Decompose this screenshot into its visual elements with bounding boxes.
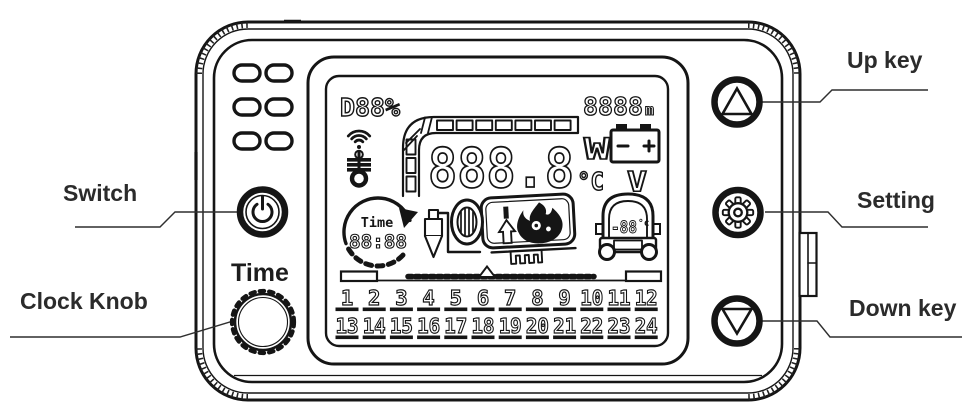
timer-hour-label: 16	[417, 314, 440, 338]
clock-knob[interactable]	[232, 291, 294, 353]
timer-hour-label: 8	[531, 286, 543, 310]
diagram-canvas: D88%	[0, 0, 970, 409]
timer-hour-label: 20	[526, 314, 549, 338]
cabin-temp-unit: °c	[638, 218, 649, 229]
car-icon: -88 °c	[596, 194, 660, 260]
timer-hour-underline	[444, 308, 467, 312]
timer-hour-label: 5	[450, 286, 462, 310]
timer-hour-underline	[472, 308, 495, 312]
battery-icon	[611, 124, 659, 162]
timer-hour-underline	[526, 308, 549, 312]
up-button[interactable]	[715, 80, 760, 125]
heater-bar	[503, 207, 509, 219]
timer-hour-label: 3	[395, 286, 407, 310]
fan-icon	[452, 200, 483, 244]
timer-hour-label: 2	[368, 286, 380, 310]
timer-hour-underline	[526, 336, 549, 340]
timer-hour-underline	[417, 336, 440, 340]
gear-icon	[723, 197, 753, 227]
timer-hour-label: 24	[635, 314, 658, 338]
timer-hour-label: 1	[341, 286, 353, 310]
timer-hour-label: 7	[504, 286, 516, 310]
timer-hour-label: 14	[363, 314, 386, 338]
power-button[interactable]	[240, 190, 285, 235]
timer-hour-label: 19	[499, 314, 522, 338]
timer-hour-underline	[444, 336, 467, 340]
altitude-value: 8888	[583, 92, 643, 121]
power-unit: W	[584, 132, 611, 166]
main-display-value: 888.8	[428, 137, 574, 200]
cabin-temp-value: -88	[611, 218, 637, 238]
timer-hour-underline	[363, 336, 386, 340]
timer-hour-underline	[580, 336, 603, 340]
setting-label: Setting	[857, 187, 935, 213]
timer-hour-label: 11	[608, 286, 631, 310]
timer-hour-underline	[608, 336, 631, 340]
timer-hour-underline	[417, 308, 440, 312]
timer-hour-underline	[635, 336, 658, 340]
lcd-screen: D88%	[308, 57, 688, 364]
timer-hour-underline	[363, 308, 386, 312]
timer-hour-underline	[499, 308, 522, 312]
timer-hour-underline	[390, 336, 413, 340]
switch-label: Switch	[63, 180, 137, 206]
up-key-label: Up key	[847, 47, 923, 73]
timer-hour-underline	[635, 308, 658, 312]
timer-hour-label: 15	[390, 314, 413, 338]
down-key-label: Down key	[849, 295, 957, 321]
side-clip	[800, 233, 817, 296]
altitude-unit: m	[645, 101, 654, 119]
down-button[interactable]	[715, 299, 760, 344]
timer-hour-label: 12	[635, 286, 658, 310]
timer-hour-label: 13	[336, 314, 359, 338]
timer-hour-underline	[472, 336, 495, 340]
setting-button[interactable]	[716, 190, 761, 235]
duty-percent-value: D88%	[340, 93, 400, 122]
timer-hour-label: 6	[477, 286, 489, 310]
timer-hour-underline	[553, 336, 576, 340]
timer-hour-underline	[336, 308, 359, 312]
timer-clock-value: 88:88	[349, 231, 407, 253]
clock-knob-label: Clock Knob	[20, 288, 148, 314]
timer-hour-label: 9	[558, 286, 570, 310]
timer-hour-label: 21	[553, 314, 576, 338]
timer-hour-label: 23	[608, 314, 631, 338]
timer-hour-underline	[499, 336, 522, 340]
knob-time-label: Time	[231, 259, 289, 287]
timer-hour-label: 17	[444, 314, 467, 338]
temp-unit: °C	[577, 167, 604, 196]
timer-hour-underline	[580, 308, 603, 312]
timer-hour-underline	[553, 308, 576, 312]
timer-title: Time	[361, 215, 394, 231]
timer-hour-label: 10	[580, 286, 603, 310]
timer-hour-label: 18	[472, 314, 495, 338]
timer-hour-underline	[336, 336, 359, 340]
timer-hour-label: 22	[580, 314, 603, 338]
timer-hour-underline	[390, 308, 413, 312]
timer-hour-label: 4	[422, 286, 434, 310]
timer-hour-underline	[608, 308, 631, 312]
